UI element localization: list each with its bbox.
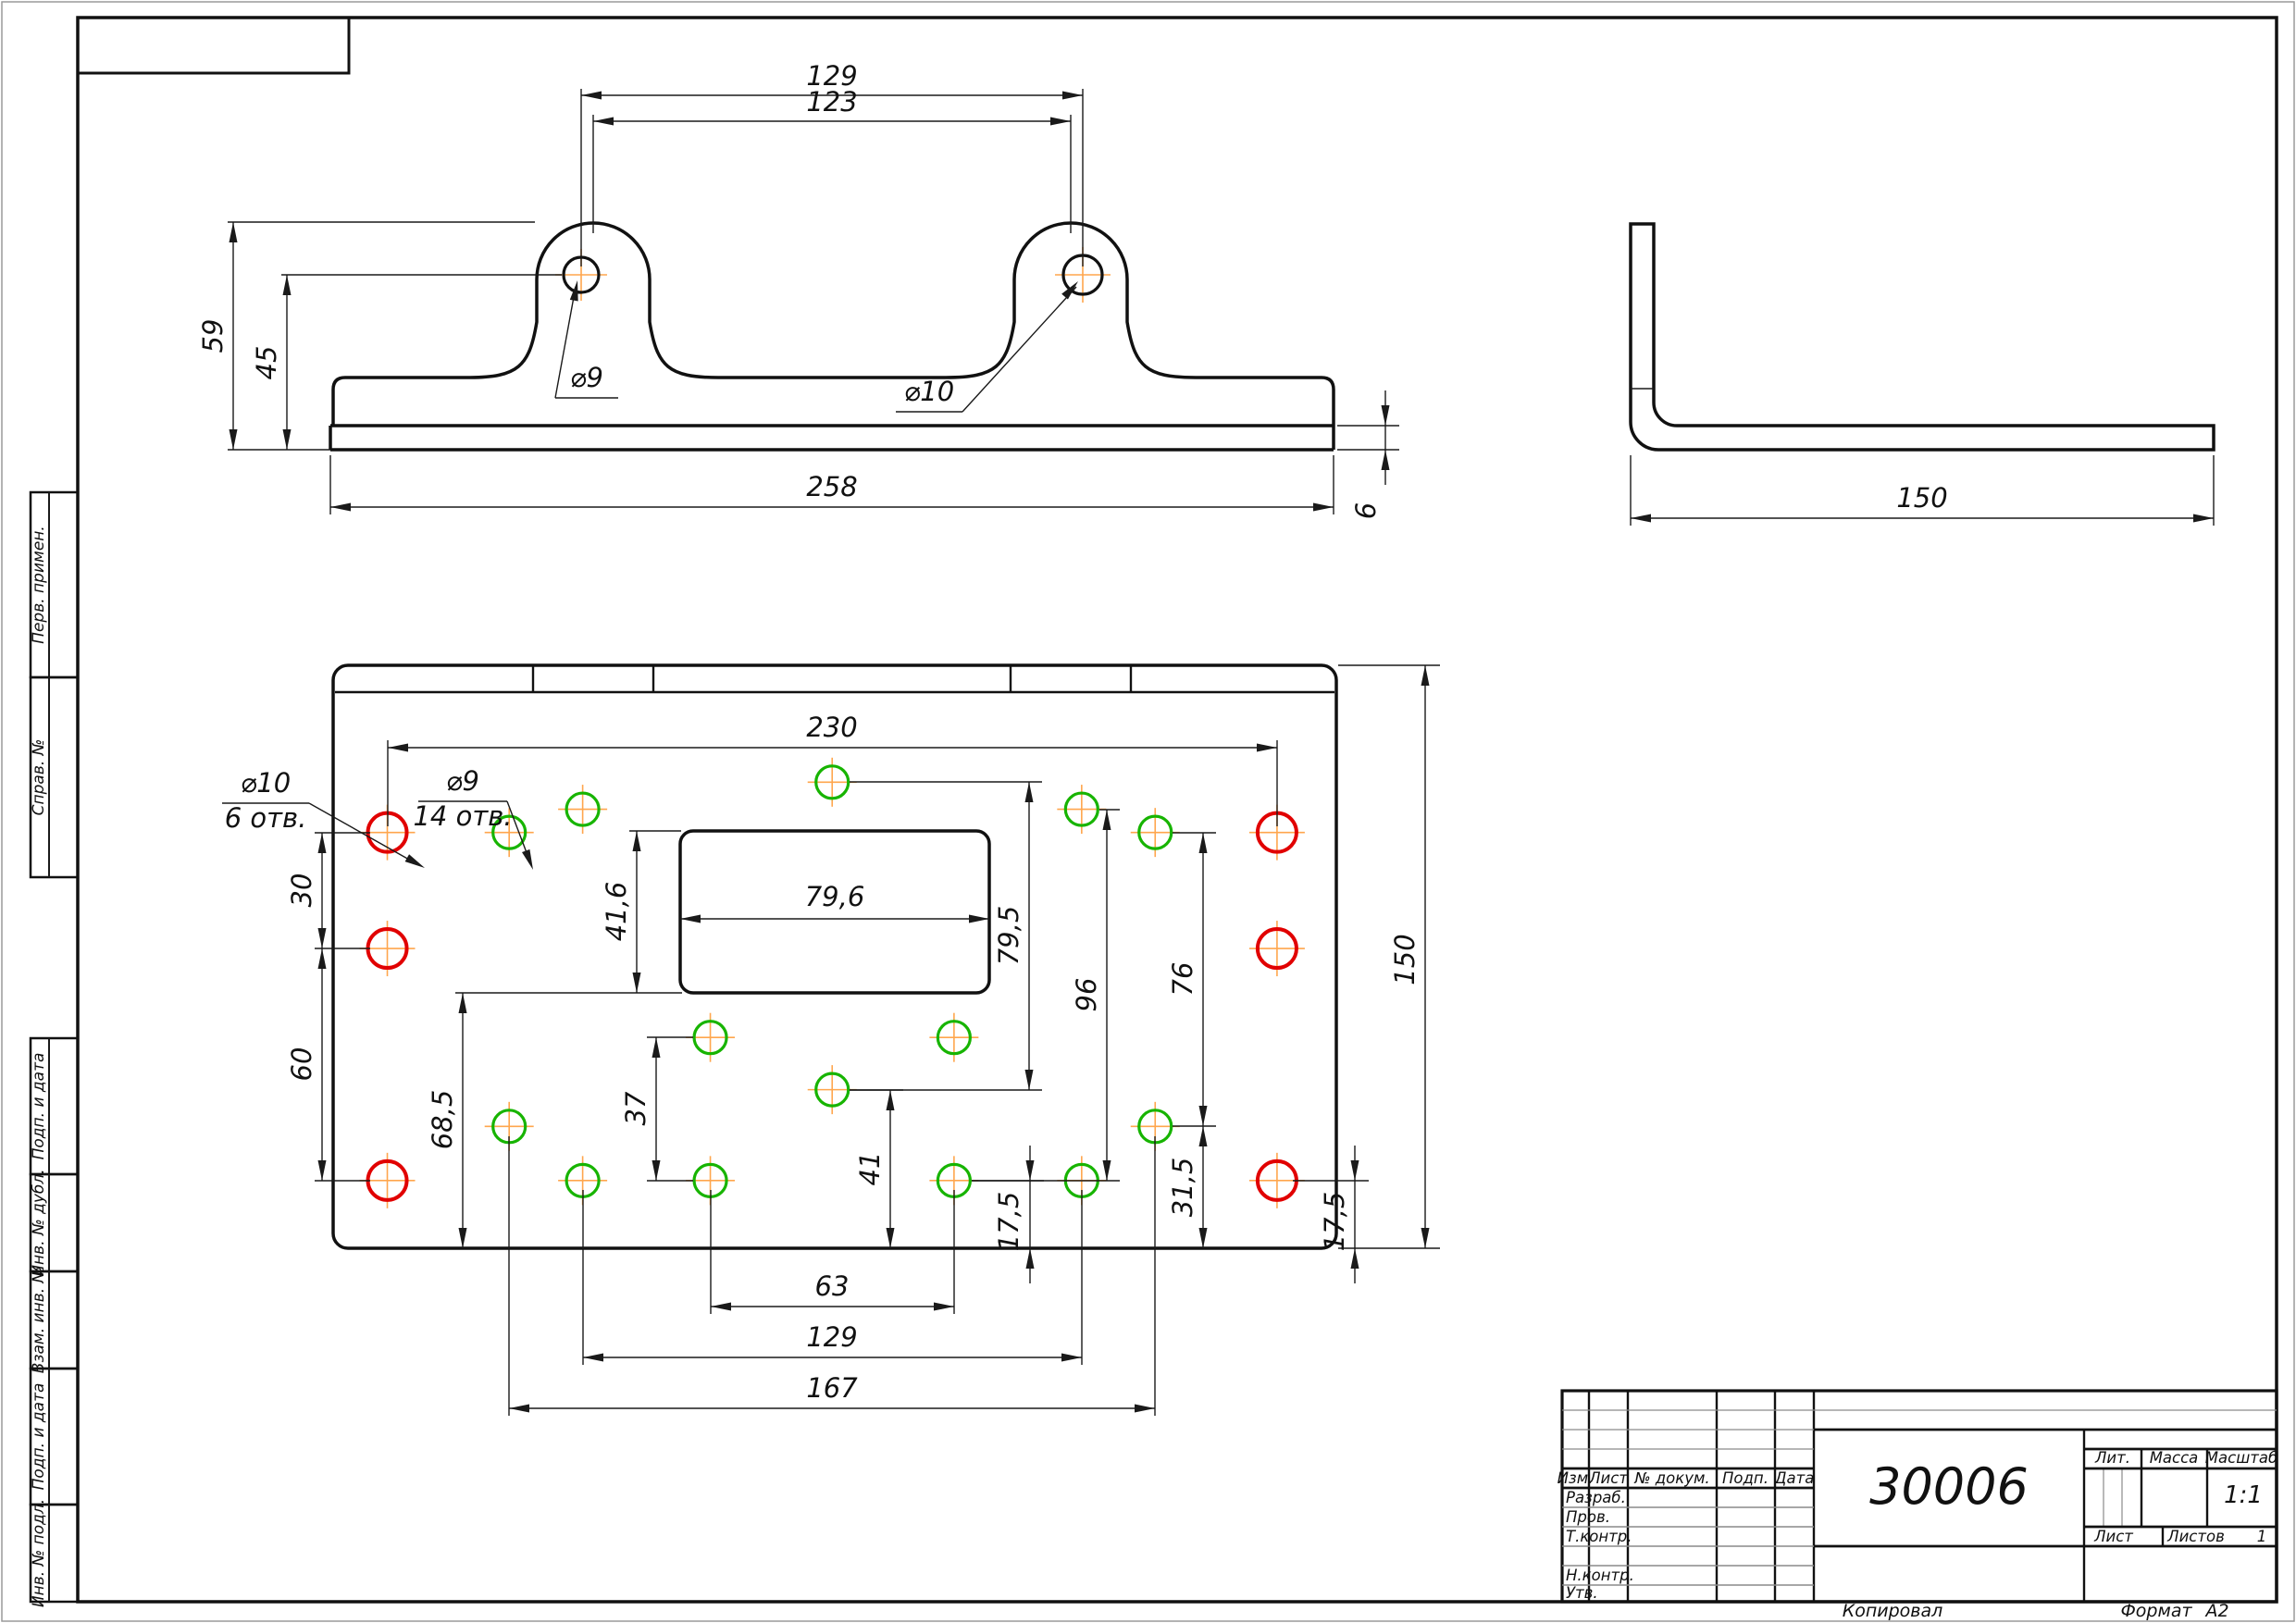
dim-arrow [1351, 1160, 1359, 1181]
margin-label: Подп. и дата [30, 1383, 48, 1491]
titleblock-role-label: Т.контр. [1566, 1528, 1632, 1545]
drawing-number: 30006 [1869, 1457, 2029, 1516]
dim-text: 230 [806, 712, 857, 743]
dim-text: 41,6 [601, 882, 632, 942]
margin-label: Взам. инв. № [30, 1267, 48, 1373]
dim-text: 258 [806, 471, 857, 502]
dim-arrow [1050, 118, 1071, 126]
dim-text: 96 [1071, 978, 1102, 1012]
titleblock-col-header: № докум. [1633, 1469, 1709, 1487]
dim-arrow [388, 744, 408, 752]
dim-text: 6 [1350, 502, 1382, 519]
note-d10-count: 6 отв. [225, 802, 307, 834]
dim-arrow [1199, 1126, 1208, 1146]
drawing-sheet: Перв. примен.Справ. №Подп. и датаИнв. № … [0, 0, 2296, 1623]
dim-arrow [711, 1303, 731, 1311]
dim-arrow [459, 993, 467, 1013]
dim-arrow [1025, 782, 1034, 802]
dim-arrow [1135, 1405, 1155, 1413]
dim-arrow [1026, 1248, 1035, 1269]
dim-arrow [230, 429, 238, 450]
sheets-label: Листов [2166, 1528, 2225, 1545]
dim-arrow [934, 1303, 954, 1311]
dim-arrow [1103, 1160, 1111, 1181]
titleblock-col-header: Дата [1774, 1469, 1815, 1487]
dim-arrow [1631, 514, 1651, 523]
dim-text: 123 [806, 86, 857, 118]
dim-arrow [633, 973, 641, 993]
copied-label: Копировал [1843, 1601, 1943, 1621]
titleblock-role-label: Разраб. [1566, 1489, 1626, 1506]
format-label: Формат [2120, 1601, 2192, 1621]
dim-arrow [318, 1160, 327, 1181]
leader-d9-front: ⌀9 [570, 362, 603, 393]
sheet-label: Лист [2093, 1528, 2133, 1545]
plan-view: 230306068,541,679,679,59676374131,517,51… [222, 665, 1440, 1416]
dim-arrow [1062, 92, 1083, 100]
dim-arrow [318, 833, 327, 853]
dim-text: 150 [1389, 934, 1421, 985]
titleblock-col-header: Изм. [1558, 1469, 1594, 1487]
dim-arrow [509, 1405, 529, 1413]
dim-arrow [283, 275, 292, 295]
dim-text: 41 [854, 1152, 886, 1186]
dim-text: 45 [251, 346, 282, 380]
titleblock-col-header: Лист [1588, 1469, 1628, 1487]
dim-arrow [583, 1354, 603, 1362]
leader-d10-front: ⌀10 [904, 376, 954, 407]
dim-arrow [2193, 514, 2214, 523]
mass-label: Масса [2150, 1449, 2199, 1467]
dim-arrow [1421, 665, 1430, 686]
sheets-value: 1 [2257, 1528, 2267, 1545]
titleblock-role-label: Н.контр. [1566, 1567, 1634, 1584]
dim-arrow [593, 118, 614, 126]
dim-text: 63 [815, 1270, 850, 1302]
side-outline [1631, 224, 2214, 450]
dim-text: 37 [620, 1091, 652, 1125]
margin-label: Подп. и дата [30, 1053, 48, 1160]
dim-arrow [581, 92, 602, 100]
dim-text: 150 [1896, 482, 1947, 514]
dim-arrow [318, 928, 327, 948]
dim-text: 17,5 [993, 1192, 1024, 1252]
dim-arrow [1199, 1228, 1208, 1248]
dim-text: 129 [806, 1321, 857, 1353]
dim-text: 30 [286, 873, 317, 908]
scale-label: Масштаб [2205, 1449, 2277, 1467]
note-d10-dia: ⌀10 [241, 767, 291, 799]
dim-arrow [318, 948, 327, 969]
dim-arrow [1382, 405, 1390, 426]
titleblock-role-label: Пров. [1566, 1508, 1610, 1526]
titleblock-role-label: Утв. [1566, 1584, 1598, 1602]
dim-text: 31,5 [1167, 1158, 1198, 1218]
dim-arrow [1382, 450, 1390, 470]
scale-value: 1:1 [2224, 1481, 2263, 1509]
dim-arrow [405, 854, 425, 868]
dim-arrow [459, 1228, 467, 1248]
format-value: А2 [2203, 1601, 2228, 1621]
dim-text: 59 [197, 319, 229, 353]
corner-designation-box [78, 18, 349, 73]
margin-label: Справ. № [30, 739, 48, 816]
dim-arrow [1351, 1248, 1359, 1269]
inner-frame [78, 18, 2277, 1602]
engineering-drawing: Перв. примен.Справ. №Подп. и датаИнв. № … [0, 0, 2296, 1623]
dim-arrow [1421, 1228, 1430, 1248]
front-outline [333, 223, 1334, 426]
dim-arrow [1025, 1070, 1034, 1090]
titleblock-col-header: Подп. [1722, 1469, 1769, 1487]
dim-arrow [1257, 744, 1277, 752]
dim-arrow [1313, 503, 1334, 512]
dim-text: 68,5 [427, 1090, 458, 1150]
dim-arrow [230, 222, 238, 242]
dim-text: 60 [286, 1047, 317, 1082]
dim-arrow [887, 1090, 895, 1110]
dim-text: 76 [1167, 962, 1198, 997]
margin-label: Инв. № подл. [30, 1499, 48, 1607]
note-d9-count: 14 отв. [413, 800, 512, 832]
dim-text: 79,6 [805, 881, 865, 912]
dim-arrow [652, 1037, 661, 1058]
sheet-edge [2, 2, 2294, 1621]
dim-arrow [1061, 1354, 1082, 1362]
sheet-frame [2, 2, 2294, 1621]
dim-arrow [1026, 1160, 1035, 1181]
side-view: 150 [1631, 224, 2214, 526]
dim-arrow [680, 915, 701, 923]
margin-columns: Перв. примен.Справ. №Подп. и датаИнв. № … [30, 492, 78, 1607]
dim-arrow [633, 831, 641, 851]
dim-text: 167 [806, 1372, 858, 1404]
dim-arrow [522, 849, 533, 870]
margin-label: Перв. примен. [30, 526, 48, 644]
dim-text: 79,5 [993, 906, 1024, 966]
dim-arrow [887, 1228, 895, 1248]
dim-text: 17,5 [1319, 1192, 1350, 1252]
dim-arrow [283, 429, 292, 450]
dim-arrow [1199, 1106, 1208, 1126]
lit-label: Лит. [2094, 1449, 2130, 1467]
front-view: 12912359452586⌀9⌀10 [197, 60, 1399, 519]
dim-arrow [1199, 833, 1208, 853]
margin-label: Инв. № дубл. [30, 1169, 48, 1276]
dim-arrow [969, 915, 989, 923]
dim-arrow [652, 1160, 661, 1181]
title-block: Изм.Лист№ докум.Подп.ДатаРазраб.Пров.Т.к… [1558, 1391, 2278, 1621]
dim-arrow [330, 503, 351, 512]
note-d9-dia: ⌀9 [446, 765, 479, 797]
dim-arrow [1103, 810, 1111, 830]
